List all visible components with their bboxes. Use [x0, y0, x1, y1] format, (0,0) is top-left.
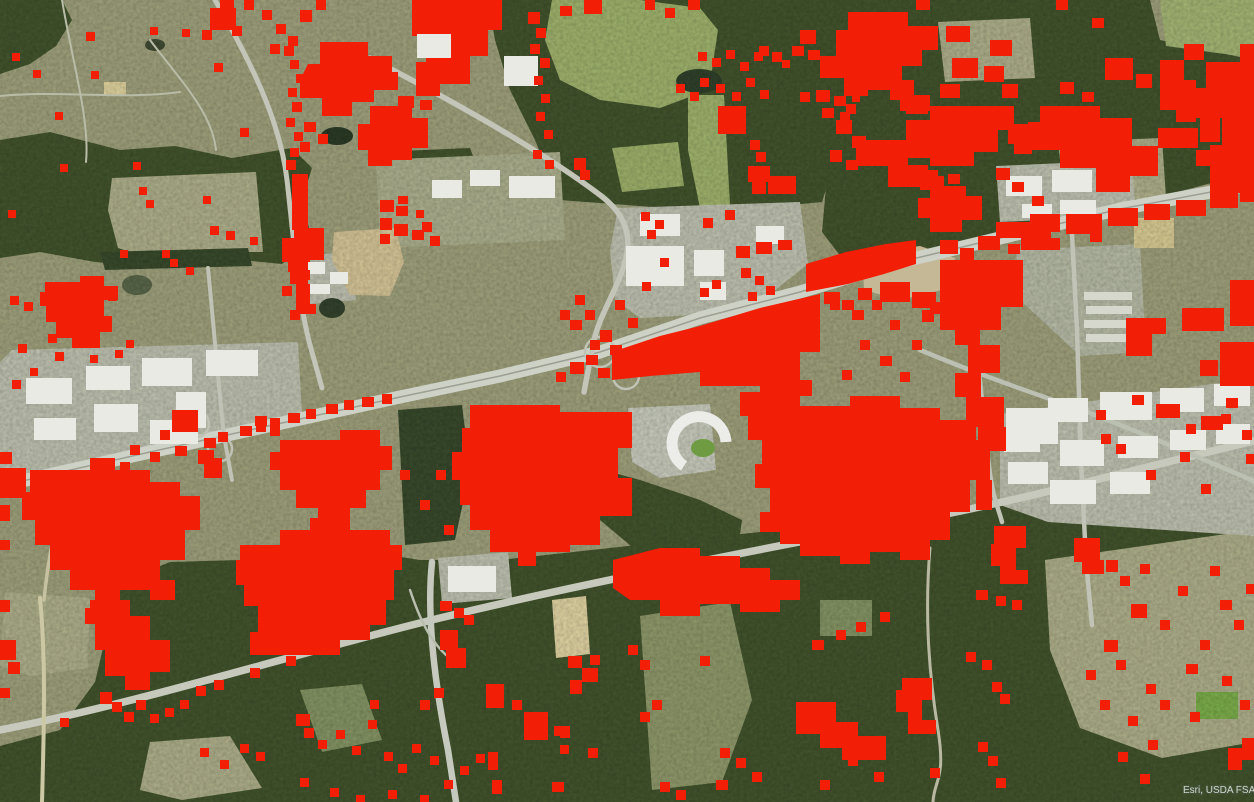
svg-text:Esri, USDA FSA: Esri, USDA FSA [1183, 785, 1254, 796]
